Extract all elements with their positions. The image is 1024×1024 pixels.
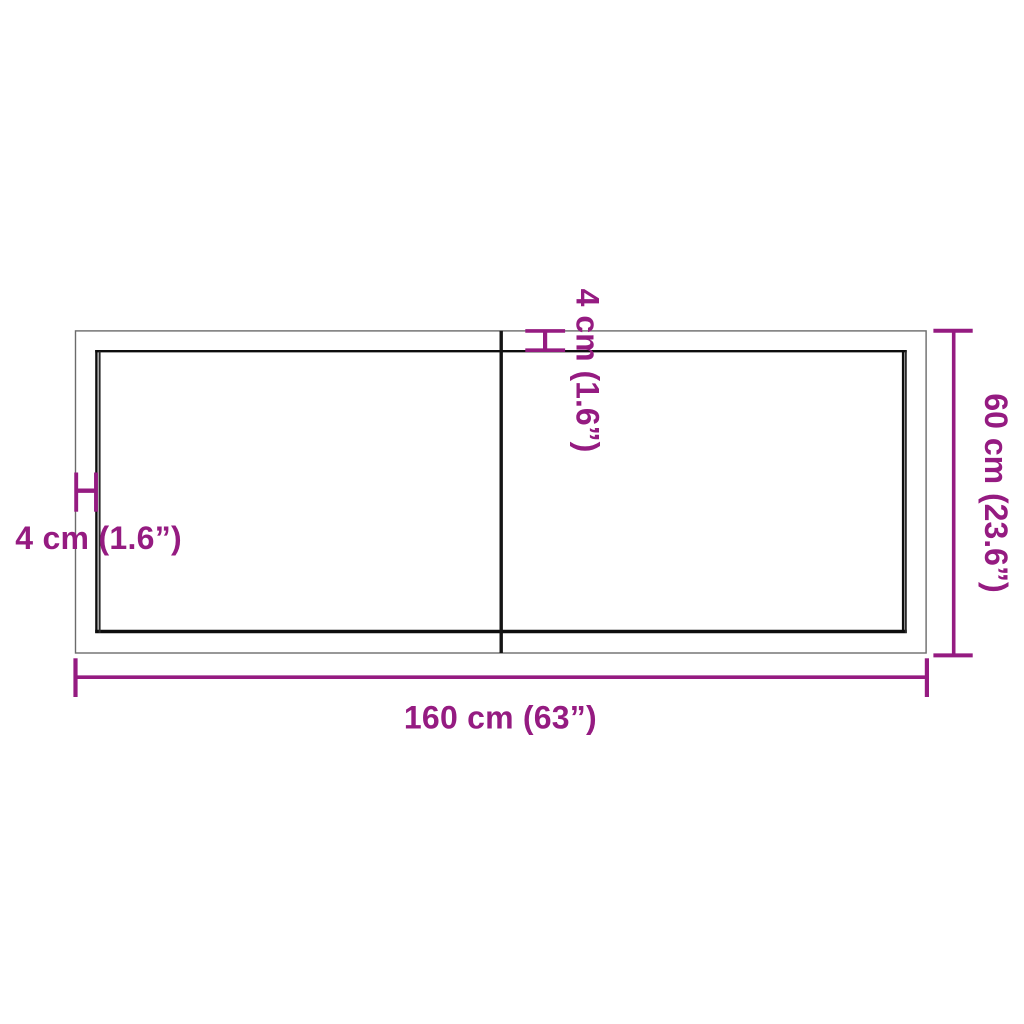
- svg-text:4 cm (1.6”): 4 cm (1.6”): [570, 289, 606, 453]
- svg-text:4 cm (1.6”): 4 cm (1.6”): [15, 520, 182, 556]
- svg-text:160 cm (63”): 160 cm (63”): [404, 700, 597, 736]
- svg-text:60 cm (23.6”): 60 cm (23.6”): [978, 393, 1014, 592]
